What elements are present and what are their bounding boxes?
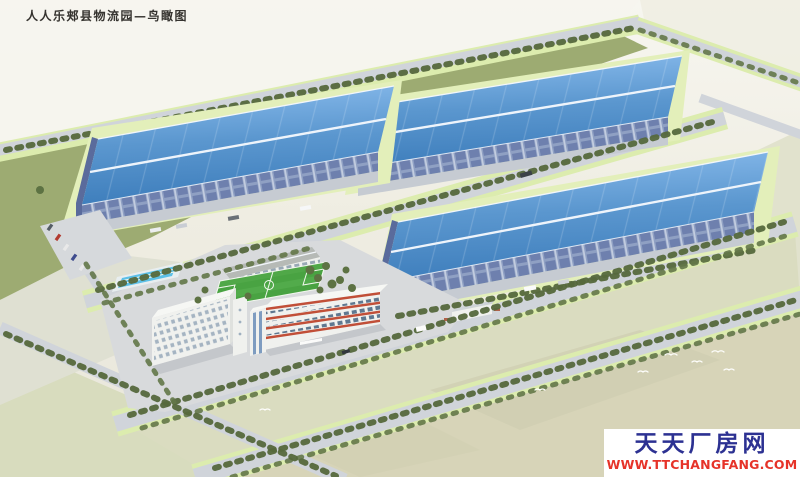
- office-tower-glass: [253, 312, 256, 354]
- tree: [306, 266, 315, 275]
- page-title: 人人乐郏县物流园—鸟瞰图: [26, 7, 188, 24]
- tree: [202, 287, 209, 294]
- tree: [336, 276, 344, 284]
- tree: [245, 293, 252, 300]
- tree: [195, 297, 202, 304]
- render-scene: [0, 0, 800, 477]
- office-tower: [250, 308, 266, 356]
- tower-window: [239, 309, 242, 312]
- watermark-site-url: WWW.TTCHANGFANG.COM: [604, 457, 800, 473]
- tree: [36, 186, 44, 194]
- watermark: 天天厂房网 WWW.TTCHANGFANG.COM: [604, 429, 800, 477]
- tree: [322, 262, 330, 270]
- tree: [348, 284, 356, 292]
- tree: [317, 287, 324, 294]
- tree: [328, 280, 337, 289]
- tower-window: [239, 321, 242, 324]
- tower-window: [239, 333, 242, 336]
- aerial-render-image: 人人乐郏县物流园—鸟瞰图 天天厂房网 WWW.TTCHANGFANG.COM: [0, 0, 800, 477]
- office-tower-glass: [259, 311, 262, 354]
- tree: [314, 274, 322, 282]
- watermark-site-name: 天天厂房网: [604, 432, 800, 457]
- tree: [343, 267, 350, 274]
- dormitory-stair-tower: [233, 296, 247, 356]
